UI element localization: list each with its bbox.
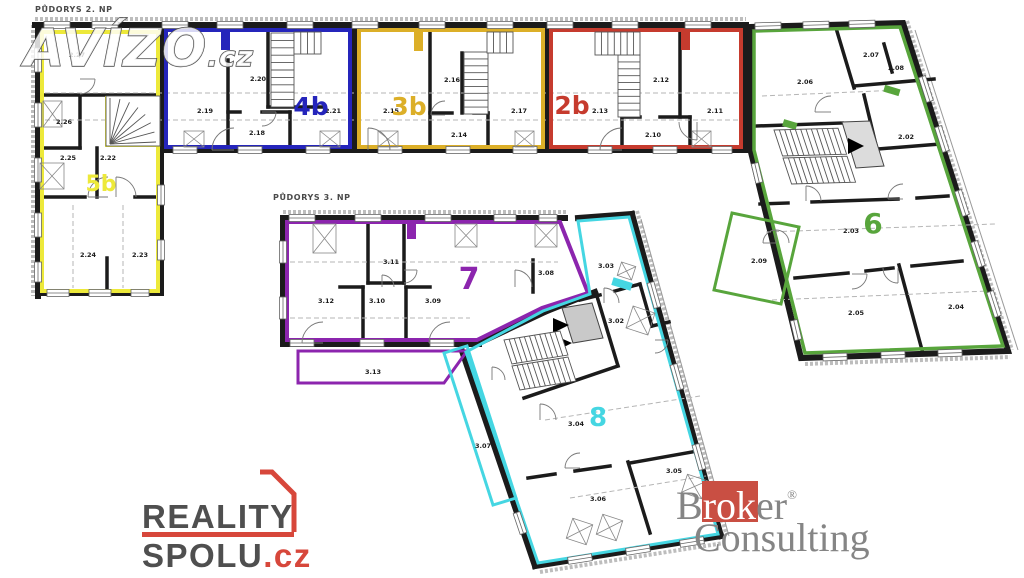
broker-logo-word2: Consulting <box>694 515 870 560</box>
door-swing <box>540 404 556 420</box>
tag-6a <box>782 119 797 130</box>
window-mark <box>287 22 313 29</box>
reality-spolu-logo: REALITY SPOLU.cz <box>142 472 312 574</box>
unit-outline-2b <box>551 30 741 147</box>
room-label: 3.02 <box>608 317 624 325</box>
fan-staircase <box>106 96 160 146</box>
room-label: 2.03 <box>843 227 859 235</box>
window-mark <box>823 353 847 361</box>
window-mark <box>425 215 451 222</box>
room-label: 2.13 <box>592 107 608 115</box>
door-swing <box>492 367 505 380</box>
window-mark <box>355 215 381 222</box>
door-swing <box>262 112 276 126</box>
room-label: 2.14 <box>451 131 468 139</box>
unit-label-6: 6 <box>863 207 882 240</box>
door-swing <box>565 453 580 468</box>
room-label: 2.05 <box>848 309 865 317</box>
window-mark <box>712 147 732 154</box>
unit-outline-3b <box>359 30 543 147</box>
wardrobe-box <box>378 131 398 147</box>
window-mark <box>419 22 445 29</box>
room-label: 3.12 <box>318 297 334 305</box>
door-swing <box>806 186 821 201</box>
room-label: 2.16 <box>444 76 461 84</box>
room-label: 2.09 <box>751 257 768 265</box>
staircase-rotated <box>783 156 856 184</box>
unit-label-2b: 2b <box>554 91 589 120</box>
tag-6b <box>883 85 900 96</box>
window-mark <box>280 241 287 263</box>
window-mark <box>751 162 762 183</box>
window-mark <box>790 319 801 340</box>
window-mark <box>131 290 149 297</box>
room-label: 3.09 <box>425 297 442 305</box>
window-mark <box>685 22 711 29</box>
window-mark <box>446 147 470 154</box>
tag-3b <box>414 31 423 51</box>
door-swing <box>404 270 417 283</box>
room-label: 3.03 <box>598 262 614 270</box>
room-label: 2.17 <box>511 107 527 115</box>
plan-3np-title: PŮDORYS 3. NP <box>273 191 351 202</box>
room-label: 3.11 <box>383 258 400 266</box>
unit-outline-6 <box>754 27 1003 353</box>
window-mark <box>494 215 516 222</box>
staircase <box>464 52 488 114</box>
room-label: 2.18 <box>249 129 266 137</box>
door-swing <box>815 96 831 112</box>
room-label: 3.06 <box>590 495 607 503</box>
staircase <box>294 32 321 54</box>
window-mark <box>539 215 557 222</box>
staircase <box>618 55 640 117</box>
wardrobe-box <box>313 224 336 253</box>
unit-label-3b: 3b <box>391 92 426 121</box>
window-mark <box>35 103 42 127</box>
window-mark <box>938 349 962 357</box>
window-mark <box>158 240 165 260</box>
window-mark <box>653 147 677 154</box>
floor-plan-page: 2.272.262.252.222.242.232.192.202.182.21… <box>0 0 1024 578</box>
unit-label-8: 8 <box>589 403 607 433</box>
window-mark <box>289 215 315 222</box>
room-label: 3.13 <box>365 368 381 376</box>
door-swing <box>515 270 532 287</box>
reality-logo-line1: REALITY <box>142 498 294 535</box>
plan-2np-title: PŮDORYS 2. NP <box>35 3 113 14</box>
room-label: 2.06 <box>797 78 814 86</box>
tag-2b <box>681 30 690 50</box>
room-label: 2.24 <box>80 251 97 259</box>
reality-logo-line2: SPOLU.cz <box>142 537 312 574</box>
room-label: 2.26 <box>56 118 73 126</box>
door-swing <box>888 184 903 199</box>
terrace-outline-313 <box>298 351 467 383</box>
window-mark <box>158 185 165 205</box>
broker-consulting-logo: Broker® Consulting <box>676 481 870 560</box>
wardrobe-box <box>455 224 477 247</box>
unit-label-5b: 5b <box>85 172 116 197</box>
window-mark <box>487 22 513 29</box>
room-label: 2.19 <box>197 107 214 115</box>
room-label: 3.10 <box>369 297 386 305</box>
window-mark <box>360 340 384 347</box>
outer-walls <box>35 23 1008 566</box>
window-mark <box>217 22 243 29</box>
room-label: 2.12 <box>653 76 669 84</box>
window-mark <box>47 290 69 297</box>
staircase-rotated <box>774 128 847 156</box>
window-mark <box>35 158 42 182</box>
window-mark <box>352 22 378 29</box>
unit-outline-7 <box>287 222 588 340</box>
window-mark <box>626 545 651 556</box>
room-label: 2.22 <box>100 154 116 162</box>
window-mark <box>612 22 638 29</box>
floor-plan-canvas: 2.272.262.252.222.242.232.192.202.182.21… <box>0 0 1024 578</box>
wardrobe-box <box>566 518 592 544</box>
door-swing <box>382 275 394 287</box>
door-swing <box>80 79 95 94</box>
staircase <box>595 32 640 55</box>
window-mark <box>568 554 593 565</box>
unit-label-7: 7 <box>459 262 480 297</box>
room-label: 2.25 <box>60 154 77 162</box>
window-mark <box>755 22 781 30</box>
room-label: 2.23 <box>132 251 148 259</box>
room-label: 3.07 <box>475 442 491 450</box>
room-label: 2.04 <box>948 303 965 311</box>
unit-label-4b: 4b <box>293 92 328 121</box>
wardrobe-box <box>184 131 204 147</box>
window-mark <box>35 262 42 282</box>
room-label: 2.11 <box>707 107 724 115</box>
window-mark <box>803 21 829 29</box>
window-mark <box>306 147 330 154</box>
window-mark <box>881 351 905 359</box>
window-mark <box>849 20 875 28</box>
window-mark <box>35 213 42 237</box>
window-mark <box>238 147 262 154</box>
door-swing <box>116 177 136 197</box>
window-marks <box>35 20 1002 564</box>
window-mark <box>173 147 197 154</box>
tag-7 <box>407 221 416 239</box>
wardrobe-box <box>515 131 534 147</box>
room-label: 3.05 <box>666 467 683 475</box>
wardrobe-box <box>692 131 711 147</box>
window-mark <box>280 297 287 319</box>
room-label: 2.07 <box>863 51 879 59</box>
window-mark <box>513 147 537 154</box>
window-mark <box>89 290 111 297</box>
room-label: 2.08 <box>888 64 905 72</box>
wardrobe-box <box>320 131 340 147</box>
room-label: 2.20 <box>250 75 267 83</box>
room-and-unit-labels: 2.272.262.252.222.242.232.192.202.182.21… <box>56 51 965 503</box>
door-swing <box>852 274 867 289</box>
room-label: 2.02 <box>898 133 914 141</box>
staircase <box>487 32 513 53</box>
room-label: 3.04 <box>568 420 585 428</box>
room-label: 3.08 <box>538 269 555 277</box>
window-mark <box>547 22 573 29</box>
staircase <box>271 33 294 107</box>
wardrobe-box <box>617 262 636 280</box>
wardrobe-box <box>596 514 622 540</box>
room-label: 2.10 <box>645 131 662 139</box>
wardrobe-box <box>535 224 557 247</box>
